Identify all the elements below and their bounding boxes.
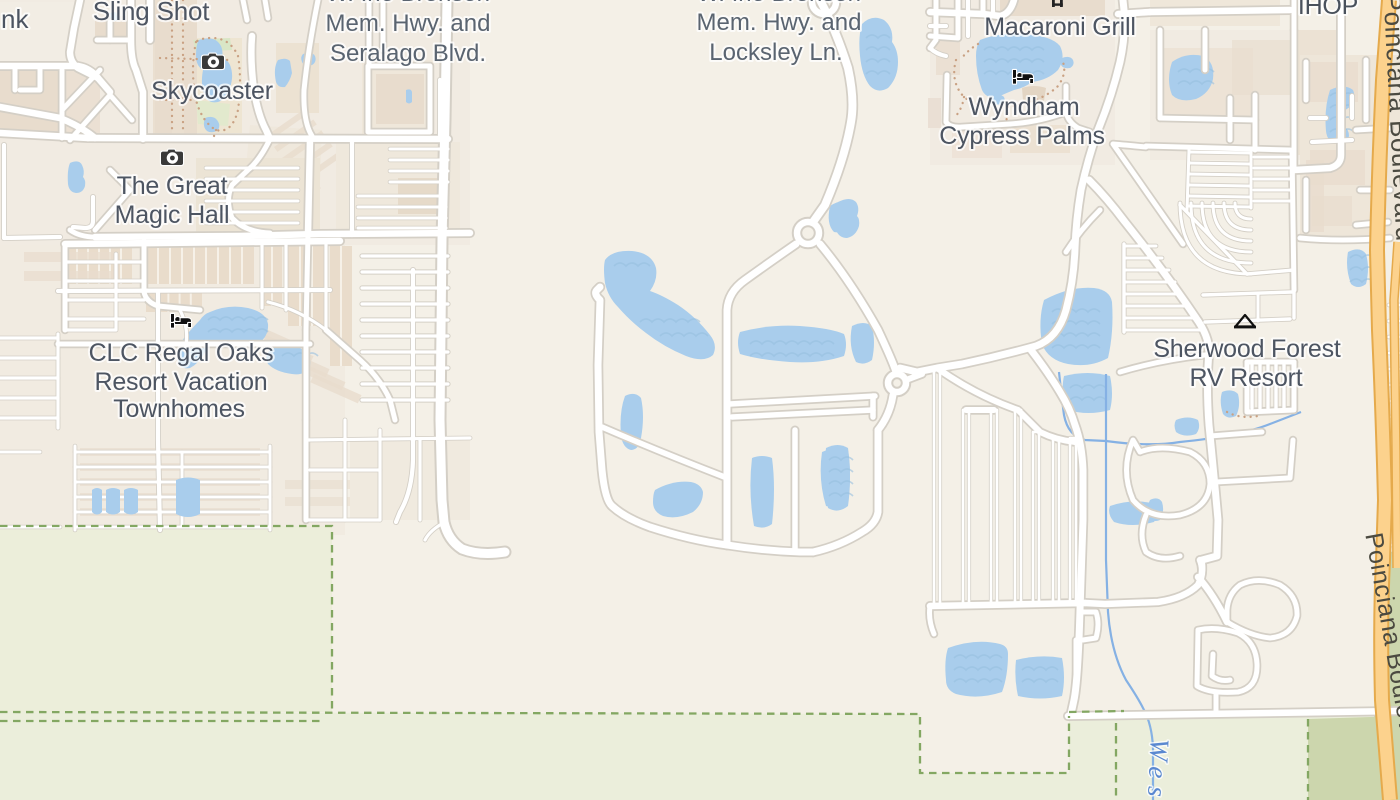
- svg-text:Macaroni Grill: Macaroni Grill: [984, 13, 1135, 41]
- svg-text:Resort Vacation: Resort Vacation: [94, 368, 267, 396]
- svg-text:Mem. Hwy. and: Mem. Hwy. and: [697, 9, 862, 36]
- svg-text:CLC Regal Oaks: CLC Regal Oaks: [89, 339, 274, 367]
- svg-text:nk: nk: [1, 4, 29, 34]
- svg-text:Skycoaster: Skycoaster: [151, 77, 273, 105]
- svg-text:Magic Hall: Magic Hall: [115, 201, 230, 229]
- svg-text:Locksley Ln.: Locksley Ln.: [709, 39, 842, 66]
- svg-text:Wyndham: Wyndham: [969, 93, 1080, 121]
- svg-text:W. Irlo Bronson: W. Irlo Bronson: [697, 0, 861, 7]
- svg-text:Cypress Palms: Cypress Palms: [939, 122, 1105, 150]
- svg-text:W. Irlo Bronson: W. Irlo Bronson: [326, 0, 490, 7]
- svg-text:IHOP: IHOP: [1298, 0, 1358, 20]
- svg-text:Sling Shot: Sling Shot: [93, 0, 210, 26]
- svg-text:Mem. Hwy. and: Mem. Hwy. and: [326, 10, 491, 37]
- svg-text:West: West: [1141, 738, 1175, 800]
- svg-text:RV Resort: RV Resort: [1189, 364, 1302, 392]
- svg-text:Sherwood Forest: Sherwood Forest: [1153, 335, 1341, 363]
- svg-text:The Great: The Great: [117, 172, 228, 200]
- svg-text:Townhomes: Townhomes: [113, 395, 245, 423]
- svg-text:Seralago Blvd.: Seralago Blvd.: [330, 40, 486, 67]
